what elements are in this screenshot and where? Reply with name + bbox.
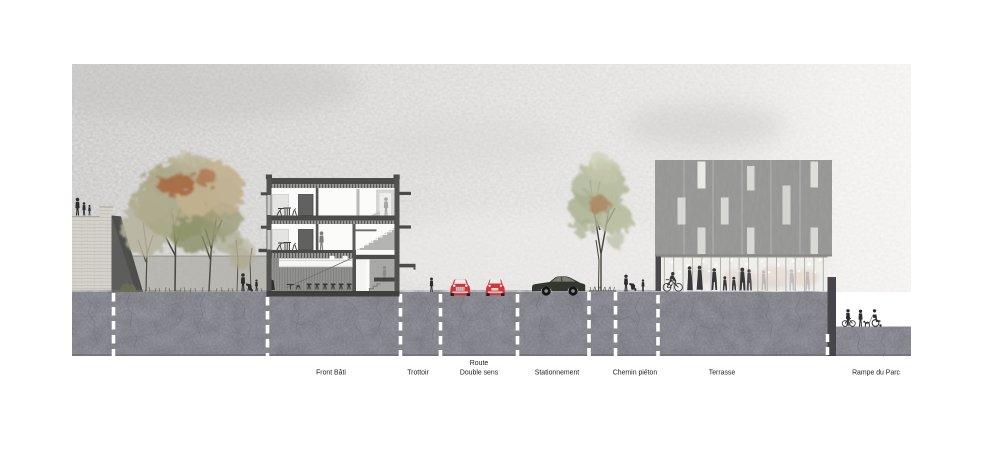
svg-text:Rampe du Parc: Rampe du Parc bbox=[852, 370, 900, 377]
svg-text:Route: Route bbox=[470, 360, 489, 367]
svg-text:Trottoir: Trottoir bbox=[407, 370, 429, 377]
svg-text:Double sens: Double sens bbox=[460, 370, 499, 377]
svg-text:Stationnement: Stationnement bbox=[535, 370, 580, 377]
svg-text:Chemin piéton: Chemin piéton bbox=[613, 370, 658, 377]
svg-text:Front Bâti: Front Bâti bbox=[316, 370, 346, 377]
svg-text:Terrasse: Terrasse bbox=[709, 370, 736, 377]
